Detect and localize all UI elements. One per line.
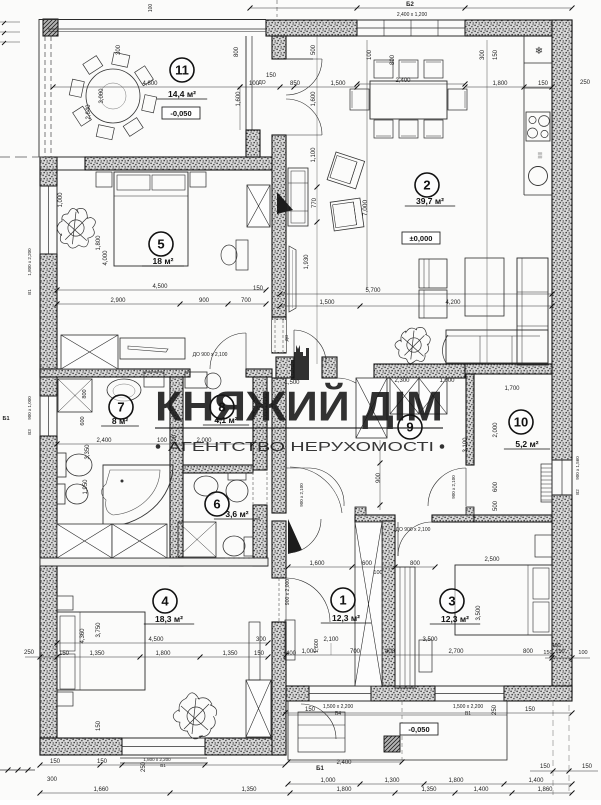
svg-text:Б1: Б1: [2, 416, 9, 422]
svg-text:4,000: 4,000: [103, 250, 109, 266]
svg-text:6: 6: [213, 497, 220, 512]
svg-text:3,350: 3,350: [85, 444, 91, 460]
svg-text:В3: В3: [27, 429, 32, 435]
svg-text:ДО 900 х 2,100: ДО 900 х 2,100: [396, 527, 431, 533]
svg-text:100: 100: [373, 570, 382, 576]
svg-text:1,860: 1,860: [537, 787, 553, 793]
svg-text:7,000: 7,000: [362, 199, 369, 216]
svg-text:12,3 м²: 12,3 м²: [441, 614, 469, 624]
svg-text:4,800: 4,800: [142, 81, 158, 87]
svg-text:1,600: 1,600: [314, 639, 320, 653]
svg-text:39,7 м²: 39,7 м²: [416, 196, 444, 206]
svg-text:Б2: Б2: [406, 2, 414, 8]
svg-text:900 х 2,000: 900 х 2,000: [285, 579, 291, 605]
svg-text:1,800: 1,800: [492, 81, 508, 87]
svg-text:150: 150: [525, 707, 536, 713]
svg-text:В4: В4: [335, 711, 341, 717]
svg-text:1,500 х 2,200: 1,500 х 2,200: [453, 704, 484, 710]
svg-text:1,800 х 2,200: 1,800 х 2,200: [143, 757, 171, 762]
svg-text:800: 800: [523, 649, 534, 655]
svg-text:150: 150: [582, 764, 593, 770]
svg-text:1: 1: [339, 593, 346, 608]
svg-text:1,500: 1,500: [319, 300, 335, 306]
svg-text:3,000: 3,000: [99, 88, 105, 104]
svg-text:2,500: 2,500: [484, 557, 500, 563]
svg-text:800: 800: [82, 389, 88, 398]
svg-text:1,000: 1,000: [320, 778, 336, 784]
svg-text:-0,050: -0,050: [170, 109, 191, 118]
svg-text:4: 4: [161, 594, 169, 609]
svg-text:3,500: 3,500: [476, 605, 482, 621]
svg-text:ДО 900 х 2,100: ДО 900 х 2,100: [193, 352, 228, 358]
svg-text:2: 2: [423, 178, 430, 193]
svg-text:В1: В1: [160, 763, 166, 768]
svg-text:-0,050: -0,050: [408, 725, 429, 734]
svg-text:1,350: 1,350: [89, 651, 105, 657]
svg-text:150: 150: [266, 73, 277, 79]
svg-text:АГЕНТСТВО НЕРУХОМОСТІ: АГЕНТСТВО НЕРУХОМОСТІ: [168, 440, 434, 454]
svg-text:600: 600: [80, 416, 86, 425]
svg-text:11: 11: [175, 63, 189, 78]
svg-text:1,660: 1,660: [93, 787, 109, 793]
svg-text:4,200: 4,200: [445, 300, 461, 306]
svg-text:1,500 х 2,200: 1,500 х 2,200: [323, 704, 354, 710]
svg-text:700: 700: [350, 649, 361, 655]
svg-text:150: 150: [59, 651, 70, 657]
svg-text:1,800: 1,800: [336, 787, 352, 793]
svg-text:18,3 м²: 18,3 м²: [155, 614, 183, 624]
svg-text:300: 300: [256, 637, 267, 643]
svg-text:2,400: 2,400: [336, 760, 352, 766]
svg-text:2,100: 2,100: [323, 637, 339, 643]
svg-text:900: 900: [199, 298, 210, 304]
svg-text:1,000: 1,000: [58, 192, 64, 208]
svg-text:2,700: 2,700: [448, 649, 464, 655]
svg-text:7: 7: [117, 400, 124, 415]
svg-text:14,4 м²: 14,4 м²: [168, 89, 196, 99]
svg-text:150: 150: [50, 759, 61, 765]
svg-text:1,600: 1,600: [309, 561, 325, 567]
svg-text:4,360: 4,360: [80, 628, 86, 644]
svg-text:150: 150: [97, 759, 108, 765]
svg-text:3,500: 3,500: [422, 637, 438, 643]
svg-text:КНЯЖИЙ ДІМ: КНЯЖИЙ ДІМ: [155, 382, 443, 430]
svg-text:1,400: 1,400: [473, 787, 489, 793]
svg-text:ДО: ДО: [284, 334, 289, 341]
svg-text:2,000: 2,000: [493, 422, 499, 438]
svg-text:100: 100: [157, 438, 168, 444]
svg-text:4,500: 4,500: [152, 284, 168, 290]
svg-text:300: 300: [480, 49, 486, 60]
svg-text:400: 400: [385, 649, 396, 655]
svg-text:150: 150: [538, 81, 549, 87]
svg-text:1,800: 1,800: [448, 778, 464, 784]
svg-text:150: 150: [96, 720, 102, 731]
svg-text:12,3 м²: 12,3 м²: [332, 613, 360, 623]
svg-text:18 м²: 18 м²: [153, 256, 174, 266]
svg-text:1,350: 1,350: [241, 787, 257, 793]
svg-text:1,400: 1,400: [528, 778, 544, 784]
svg-text:1,500: 1,500: [330, 81, 346, 87]
svg-text:770: 770: [312, 197, 318, 208]
svg-text:300: 300: [116, 44, 122, 55]
svg-text:250: 250: [580, 80, 591, 86]
svg-text:250: 250: [492, 704, 498, 715]
svg-text:1,600: 1,600: [311, 91, 317, 107]
svg-text:250: 250: [24, 650, 35, 656]
svg-text:250: 250: [141, 761, 147, 772]
svg-text:150: 150: [254, 651, 265, 657]
svg-text:150: 150: [555, 649, 564, 655]
svg-text:3,6 м²: 3,6 м²: [225, 509, 248, 519]
svg-text:150: 150: [253, 286, 264, 292]
svg-text:1,930: 1,930: [304, 254, 310, 270]
svg-text:❄: ❄: [535, 46, 543, 57]
svg-text:700: 700: [241, 298, 252, 304]
svg-text:4,500: 4,500: [148, 637, 164, 643]
svg-text:3,750: 3,750: [96, 622, 102, 638]
svg-text:900 х 1,000: 900 х 1,000: [27, 396, 32, 420]
svg-text:400: 400: [551, 643, 560, 649]
svg-text:2,640: 2,640: [86, 104, 92, 120]
svg-text:±0,000: ±0,000: [410, 234, 433, 243]
svg-text:800: 800: [390, 54, 396, 65]
svg-text:150: 150: [543, 650, 552, 656]
svg-text:900: 900: [376, 472, 382, 483]
svg-text:10: 10: [514, 415, 528, 430]
svg-text:1,800: 1,800: [155, 651, 171, 657]
svg-text:1,350: 1,350: [421, 787, 437, 793]
svg-text:5: 5: [157, 237, 164, 252]
svg-text:500: 500: [311, 44, 317, 55]
svg-text:5,2 м²: 5,2 м²: [515, 439, 538, 449]
svg-text:1,800: 1,800: [96, 235, 102, 251]
svg-text:800: 800: [410, 561, 421, 567]
svg-text:2,900: 2,900: [110, 298, 126, 304]
svg-text:1,800 х 2,200: 1,800 х 2,200: [27, 248, 32, 276]
svg-text:2,400: 2,400: [96, 438, 112, 444]
svg-text:▒: ▒: [538, 152, 543, 159]
svg-text:600: 600: [362, 561, 373, 567]
svg-text:2,400 x 1,200: 2,400 x 1,200: [397, 12, 428, 18]
svg-text:150: 150: [493, 49, 499, 60]
svg-text:1,100: 1,100: [311, 147, 317, 163]
svg-text:150: 150: [305, 707, 316, 713]
svg-text:В1: В1: [27, 289, 32, 295]
svg-text:1,700: 1,700: [504, 386, 520, 392]
svg-text:В1: В1: [465, 711, 471, 717]
svg-text:100: 100: [367, 49, 373, 60]
svg-text:ДО: ДО: [258, 80, 265, 86]
svg-text:1,950: 1,950: [83, 479, 89, 495]
svg-text:1,350: 1,350: [222, 651, 238, 657]
svg-text:Б1: Б1: [316, 766, 324, 772]
svg-text:900 х 1,560: 900 х 1,560: [575, 456, 580, 480]
svg-text:5,700: 5,700: [365, 288, 381, 294]
svg-text:500: 500: [493, 500, 499, 511]
svg-text:900 х 2,100: 900 х 2,100: [451, 475, 456, 499]
svg-text:3,100: 3,100: [463, 437, 469, 453]
svg-text:800: 800: [234, 46, 240, 57]
svg-text:1,300: 1,300: [384, 778, 400, 784]
svg-text:2,400: 2,400: [395, 78, 411, 84]
svg-text:3: 3: [448, 594, 455, 609]
svg-text:100: 100: [578, 650, 587, 656]
svg-text:150: 150: [540, 764, 551, 770]
svg-text:В2: В2: [575, 489, 580, 495]
svg-text:900 х 2,100: 900 х 2,100: [299, 483, 304, 507]
svg-text:300: 300: [47, 777, 58, 783]
svg-text:1,600: 1,600: [236, 91, 242, 107]
svg-text:600: 600: [493, 481, 499, 492]
svg-text:100: 100: [148, 4, 154, 13]
svg-text:8 м²: 8 м²: [112, 416, 128, 426]
